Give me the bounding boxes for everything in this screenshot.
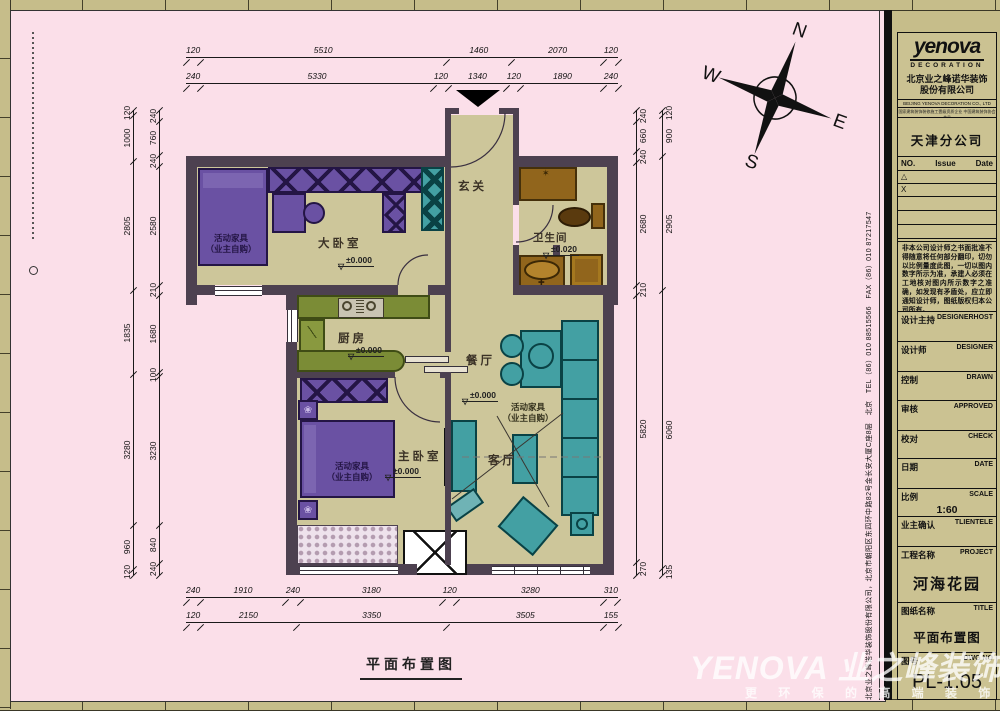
- dim: 120: [507, 71, 521, 81]
- field-label-en: CHECK: [968, 433, 993, 445]
- bed-pillow: [203, 173, 263, 188]
- rev-row-empty: [898, 211, 996, 225]
- tv-console: [451, 420, 477, 492]
- room-label-bathroom: 卫生间: [533, 230, 568, 245]
- dim: 6060: [664, 420, 674, 439]
- company-name-cn: 北京业之峰诺华装饰 股份有限公司: [898, 74, 996, 96]
- wall-vestibule-left: [445, 110, 451, 161]
- wall-left-lower: [286, 342, 297, 575]
- dim: 240: [186, 71, 200, 81]
- furniture-note-line: 活动家具: [200, 233, 262, 244]
- dim: 135: [664, 565, 674, 579]
- nightstand-plant-bottom: ❀: [298, 500, 318, 520]
- burner-left: [342, 301, 352, 311]
- dim: 1460: [469, 45, 488, 55]
- dim: 240: [148, 562, 158, 576]
- dim-row-top-outer: 120 5510 1460 2070 120: [186, 45, 618, 58]
- dim: 1340: [468, 71, 487, 81]
- field-label-en: DESIGNER: [956, 344, 993, 356]
- compass-w: W: [700, 62, 723, 88]
- wall-right-lower: [603, 295, 614, 575]
- balcony-hatch: [297, 525, 398, 564]
- dim: 120: [434, 71, 448, 81]
- field-date: 日期DATE: [897, 458, 997, 489]
- yenova-logo: yenova: [898, 35, 996, 59]
- window-balcony: [300, 566, 398, 575]
- rev-row: X: [898, 184, 996, 197]
- field-label-cn: 校对: [901, 433, 918, 445]
- branch-box: 天津分公司: [897, 117, 997, 157]
- yenova-logo-sub: DECORATION: [910, 59, 984, 69]
- dim: 155: [604, 610, 618, 620]
- field-label-cn: 工程名称: [901, 549, 935, 561]
- dim: 310: [604, 585, 618, 595]
- dim: 120: [186, 45, 200, 55]
- dim: 2070: [548, 45, 567, 55]
- dim: 3505: [516, 610, 535, 620]
- disclaimer-text: 非本公司设计师之书面批准不得随意将任何部分翻印，切勿以比例量度此图，一切以图内数…: [898, 242, 996, 318]
- stove-grate: [356, 300, 364, 313]
- wardrobe-return: [382, 193, 406, 233]
- sofa: [561, 320, 599, 516]
- company-name-line: 股份有限公司: [898, 85, 996, 96]
- wall: [186, 156, 451, 167]
- dim: 240: [604, 71, 618, 81]
- elevation-master-bedroom: ±0.000: [385, 466, 421, 478]
- wall: [499, 108, 519, 114]
- wall: [262, 285, 398, 295]
- dim: 5330: [308, 71, 327, 81]
- field-label-en: DESIGNERHOST: [937, 314, 993, 326]
- furniture-note-line: （业主自购）: [318, 472, 386, 483]
- dim: 2805: [122, 216, 132, 235]
- rev-row-empty: [898, 197, 996, 211]
- dim: 900: [664, 129, 674, 143]
- shower-head-icon: ✶: [542, 168, 550, 179]
- room-label-master-bedroom: 主卧室: [398, 448, 442, 464]
- wardrobe-big-bedroom: [268, 167, 425, 193]
- burner-right: [366, 301, 376, 311]
- dim: 120: [122, 565, 132, 579]
- room-label-dining: 餐厅: [466, 352, 495, 368]
- field-client: 业主确认TLIENTELE: [897, 516, 997, 547]
- elevation-kitchen: ±0.000: [348, 345, 384, 357]
- speaker-cone: [576, 518, 588, 530]
- wall: [513, 167, 519, 205]
- window-kitchen: [287, 310, 298, 342]
- furniture-note-line: （业主自购）: [494, 413, 562, 424]
- nightstand-plant-top: ❀: [298, 400, 318, 420]
- dim: 1000: [122, 129, 132, 148]
- room-label-entry: 玄关: [458, 178, 487, 194]
- field-project: 工程名称PROJECT 河海花园: [897, 546, 997, 603]
- field-label-en: DATE: [974, 461, 993, 473]
- floor-patch-foyer: [451, 285, 513, 297]
- dim: 2905: [664, 214, 674, 233]
- entry-arrow: [456, 90, 500, 107]
- compass-rose: N E S W: [700, 20, 850, 170]
- dim: 2680: [638, 214, 648, 233]
- dim: 760: [148, 131, 158, 145]
- floor-entry: [451, 115, 513, 295]
- dim-col-left-inner: 240 760 240 2580 210 1680 100 3230 840 2…: [147, 110, 160, 575]
- dim-row-bottom-inner: 240 1910 240 3180 120 3280 310: [186, 585, 618, 598]
- wall-master-top: [297, 372, 395, 378]
- tiny-circle-marker: [29, 266, 38, 275]
- wall: [186, 156, 197, 305]
- sliding-door-panel-1: [405, 356, 449, 363]
- company-name-line: 北京业之峰诺华装饰: [898, 74, 996, 85]
- rev-col-issue: Issue: [935, 159, 955, 168]
- field-label-cn: 日期: [901, 461, 918, 473]
- dim: 3350: [362, 610, 381, 620]
- dining-table: [520, 330, 562, 388]
- field-label-cn: 控制: [901, 374, 918, 386]
- elevation-dining: ±0.000: [462, 390, 498, 402]
- rev-row: △: [898, 171, 996, 184]
- project-name: 河海花园: [898, 573, 996, 594]
- drawing-sheet: ✶ ✚ ❀ ❀: [0, 0, 1000, 709]
- room-label-kitchen: 厨房: [338, 330, 367, 346]
- revision-box: NO. Issue Date △ X: [897, 156, 997, 242]
- wall-spine-lower: [445, 377, 451, 565]
- dim: 3280: [521, 585, 540, 595]
- dim: 120: [604, 45, 618, 55]
- dim-col-right-outer: 120 900 2905 6060 135: [662, 110, 675, 575]
- dim-row-bottom-outer: 120 2150 3350 3505 155: [186, 610, 618, 623]
- field-label-en: APPROVED: [954, 403, 993, 415]
- field-drawn: 控制DRAWN: [897, 371, 997, 401]
- field-label-en: PROJECT: [960, 549, 993, 561]
- branch-name: 天津分公司: [898, 130, 996, 149]
- window-living: [492, 566, 590, 575]
- field-label-cn: 设计主持: [901, 314, 935, 326]
- dim-row-top-inner: 240 5330 120 1340 120 1890 240: [186, 71, 618, 84]
- dim: 240: [186, 585, 200, 595]
- compass-s: S: [742, 150, 761, 170]
- wall: [513, 156, 617, 167]
- dim-col-right-inner: 240 660 240 2680 210 5820 270: [636, 110, 649, 575]
- wall-spine-upper: [445, 161, 451, 352]
- sheet-title: 平面布置图: [898, 627, 996, 646]
- desk: [272, 193, 306, 233]
- elevation-bathroom: ±0.020: [543, 244, 579, 256]
- wall: [445, 108, 459, 114]
- washing-machine: [570, 254, 603, 287]
- furniture-note-line: （业主自购）: [200, 244, 262, 255]
- dim: 840: [148, 538, 158, 552]
- rev-col-date: Date: [976, 159, 993, 168]
- furniture-note-line: 活动家具: [494, 402, 562, 413]
- dim: 960: [122, 540, 132, 554]
- company-box: yenova DECORATION 北京业之峰诺华装饰 股份有限公司 BEIJI…: [897, 32, 997, 118]
- field-label-en: TLIENTELE: [955, 519, 993, 531]
- field-design-host: 设计主持DESIGNERHOST: [897, 311, 997, 342]
- field-label-cn: 设计师: [901, 344, 927, 356]
- kitchen-sink: [299, 319, 325, 353]
- company-name-en: BEIJING YENOVA DECORATION CO., LTD: [898, 99, 996, 108]
- scale-value: 1:60: [898, 504, 996, 516]
- wall: [513, 245, 519, 295]
- inner-frame-line: [879, 10, 880, 700]
- field-label-cn: 比例: [901, 491, 918, 503]
- field-designer: 设计师DESIGNER: [897, 341, 997, 372]
- dim: 5510: [314, 45, 333, 55]
- field-label-en: SCALE: [969, 491, 993, 503]
- toilet-bowl: [558, 207, 591, 227]
- compass-e: E: [830, 110, 849, 134]
- dim: 3180: [362, 585, 381, 595]
- dim: 660: [638, 129, 648, 143]
- compass-n: N: [789, 20, 809, 43]
- dim: 120: [443, 585, 457, 595]
- titleblock-border-bar: [884, 10, 892, 700]
- dim: 1890: [553, 71, 572, 81]
- dim: 3230: [148, 442, 158, 461]
- field-label-cn: 审核: [901, 403, 918, 415]
- rev-col-no: NO.: [901, 159, 915, 168]
- dim-col-left-outer: 120 1000 2805 1835 3280 960 120: [121, 110, 134, 575]
- plan-caption: 平面布置图: [360, 654, 462, 680]
- company-side-text: 北京业之峰诺华装饰股份有限公司，北京市朝阳区东四环中路82号金长安大厦C座8层 …: [864, 12, 877, 700]
- furniture-note-bed1: 活动家具 （业主自购）: [200, 233, 262, 255]
- dim: 2150: [239, 610, 258, 620]
- basin: [524, 260, 560, 280]
- furniture-note-bed2: 活动家具 （业主自购）: [318, 461, 386, 483]
- shoe-cabinet: [421, 167, 444, 231]
- field-title: 图纸名称TITLE 平面布置图: [897, 602, 997, 653]
- field-label-cn: 图号: [901, 655, 918, 667]
- field-dwg-no: 图号DWG NO PL-1.05: [897, 652, 997, 700]
- drawing-number: PL-1.05: [898, 671, 996, 694]
- rev-row-empty: [898, 225, 996, 239]
- dim: 1680: [148, 324, 158, 343]
- wall: [186, 285, 215, 295]
- toilet-tank: [591, 203, 605, 229]
- wall: [286, 295, 297, 310]
- furniture-note-line: 活动家具: [318, 461, 386, 472]
- elevation-big-bedroom: ±0.000: [338, 255, 374, 267]
- dim: 120: [186, 610, 200, 620]
- dim: 2580: [148, 217, 158, 236]
- window-bedroom: [215, 286, 262, 296]
- field-check: 校对CHECK: [897, 430, 997, 459]
- field-approved: 审核APPROVED: [897, 400, 997, 431]
- field-label-en: DRAWN: [967, 374, 993, 386]
- room-label-big-bedroom: 大卧室: [318, 235, 362, 251]
- field-label-cn: 业主确认: [901, 519, 935, 531]
- dim: 1835: [122, 323, 132, 342]
- bed-master-pillow: [304, 425, 316, 493]
- dim: 270: [638, 562, 648, 576]
- field-scale: 比例SCALE 1:60: [897, 488, 997, 517]
- field-label-en: DWG NO: [963, 655, 993, 667]
- field-label-cn: 图纸名称: [901, 605, 935, 617]
- dim: 3280: [122, 441, 132, 460]
- tiny-note-column: [32, 32, 34, 240]
- wall-vestibule-right: [513, 110, 519, 161]
- disclaimer-box: 非本公司设计师之书面批准不得随意将任何部分翻印，切勿以比例量度此图，一切以图内数…: [897, 241, 997, 312]
- dim: 240: [286, 585, 300, 595]
- room-label-living: 客厅: [488, 452, 517, 468]
- furniture-note-sofa: 活动家具 （业主自购）: [494, 402, 562, 424]
- dim: 5820: [638, 419, 648, 438]
- wall: [607, 156, 618, 305]
- dim: 1910: [234, 585, 253, 595]
- field-label-en: TITLE: [974, 605, 993, 617]
- wall: [513, 285, 617, 295]
- wall: [440, 372, 451, 378]
- title-block: yenova DECORATION 北京业之峰诺华装饰 股份有限公司 BEIJI…: [895, 10, 1000, 700]
